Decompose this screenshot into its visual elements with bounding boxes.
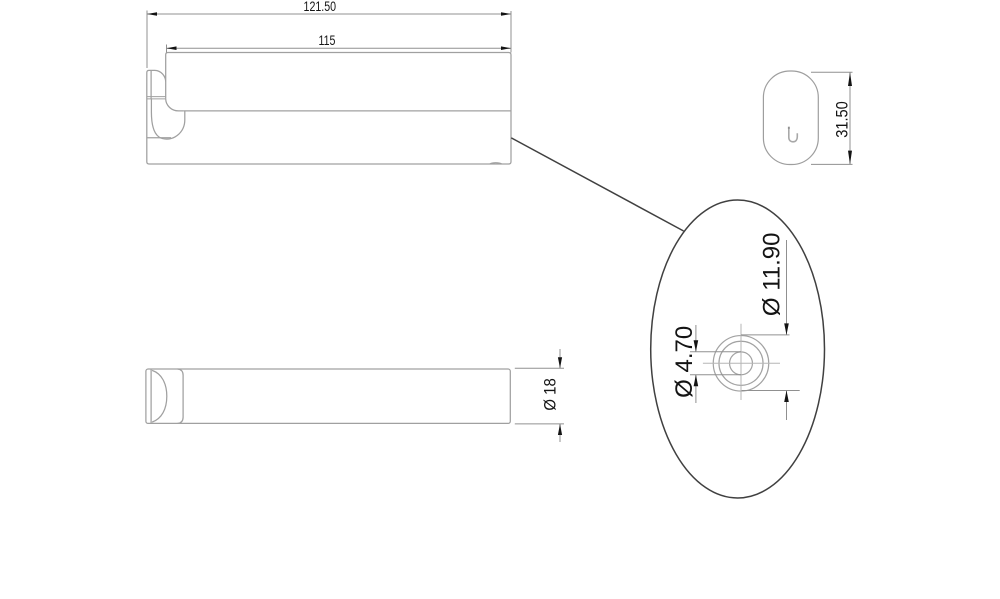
svg-text:Ø 11.90: Ø 11.90 bbox=[759, 232, 786, 316]
svg-text:115: 115 bbox=[319, 33, 336, 49]
svg-text:121.50: 121.50 bbox=[304, 0, 337, 14]
svg-text:Ø 18: Ø 18 bbox=[541, 378, 559, 411]
svg-text:Ø 4.70: Ø 4.70 bbox=[671, 326, 698, 398]
svg-text:31.50: 31.50 bbox=[833, 101, 851, 138]
